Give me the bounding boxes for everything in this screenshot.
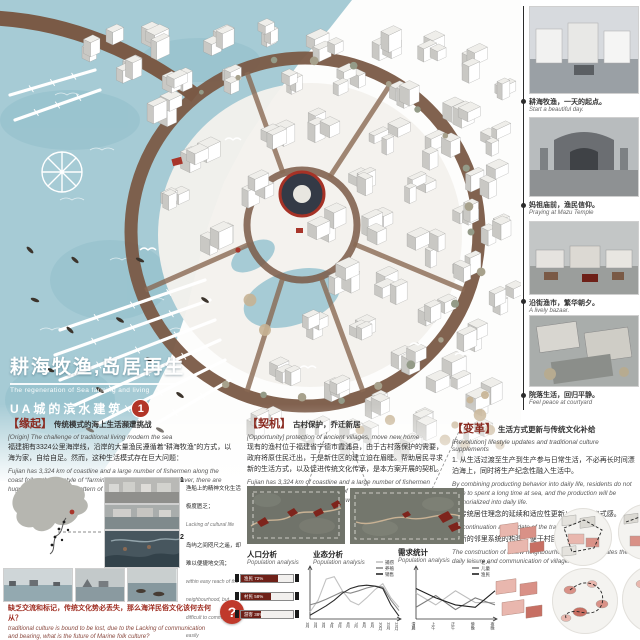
label-population-analysis: 人口分析 Population analysis (247, 549, 299, 566)
scene-card-morning: 耕海牧渔，一天的起点。 Start a beautiful day. (529, 6, 637, 113)
problem-cn: 岛屿之间咫尺之遥，却难以便捷地交流； (186, 543, 241, 567)
origin-tag-english: [Origin] The challenge of traditional li… (8, 434, 234, 441)
title-divider (10, 383, 178, 385)
scene-caption-cn: 沿街渔市，繁华朝夕。 (529, 298, 637, 308)
china-silhouette (12, 477, 87, 531)
revolution-point-en: By combining producting behavior into da… (452, 480, 636, 507)
satellite-map-industry (350, 488, 464, 544)
scene-caption-en: A lively bazaar. (529, 308, 637, 314)
svg-text:12月: 12月 (395, 622, 400, 631)
svg-text:11月: 11月 (386, 622, 391, 631)
svg-text:养殖: 养殖 (385, 565, 394, 572)
activity-flow-diagram-circle (552, 568, 618, 634)
svg-text:捕捞: 捕捞 (385, 559, 394, 566)
satellite-map-population (247, 486, 345, 544)
analysis-label-cn: 需求统计 (398, 547, 450, 558)
problem-en: Lacking of cultural life (186, 522, 234, 528)
revolution-tag-english: [Revolution] lifestyle updates and tradi… (452, 439, 636, 453)
question-block: 缺乏交流和标记，传统文化势必丢失，那么海洋民俗文化该何去何从？ traditio… (8, 604, 212, 640)
demand-line-chart: 清晨上午正午傍晚夜晚老人儿童渔民 (408, 558, 498, 634)
scene-caption-cn: 妈祖庙前，渔民信仰。 (529, 200, 637, 210)
mazu-temple-photo (529, 117, 639, 197)
timeline-dot (521, 393, 526, 398)
neighborhood-diagram-circle (554, 508, 612, 566)
svg-text:4月: 4月 (330, 622, 335, 629)
svg-text:5月: 5月 (338, 622, 343, 629)
svg-text:销售: 销售 (385, 571, 394, 578)
bar-row: 村民 58% (235, 592, 299, 600)
svg-text:9月: 9月 (370, 622, 375, 629)
question-cn: 缺乏交流和标记，传统文化势必丢失，那么海洋民俗文化该何去何从？ (8, 604, 212, 624)
svg-text:正午: 正午 (451, 622, 456, 631)
pink-block-cluster (492, 570, 550, 636)
svg-text:渔民: 渔民 (481, 571, 490, 578)
problem-item: 1 渔船上的精神文化生活极度匮乏；Lacking of cultural lif… (180, 477, 242, 531)
origin-tag: 【缘起】 (8, 418, 52, 430)
svg-text:老人: 老人 (481, 559, 490, 565)
revolution-tag: 【变革】 (452, 423, 496, 435)
population-bar-chart: 渔民 72%村民 58%游客 38% (235, 574, 299, 618)
problem-number: 1 (180, 477, 184, 531)
scene-card-temple: 妈祖庙前，渔民信仰。 Praying at Mazu Temple (529, 117, 637, 216)
revolution-note: 生活方式更新与传统文化补给 (498, 425, 596, 434)
scene-caption-en: Feel peace at courtyard (529, 400, 637, 406)
svg-text:清晨: 清晨 (412, 621, 417, 631)
central-plaza-emblem (280, 172, 324, 216)
morning-street-photo (529, 6, 639, 94)
bar-row: 渔民 72% (235, 574, 299, 582)
origin-paragraph-cn: 福建拥有3324公里海岸线，沿岸的大量渔民遵循着“耕海牧渔”的方式，以海为家，自… (8, 443, 234, 465)
scene-caption-cn: 耕海牧渔，一天的起点。 (529, 97, 637, 107)
china-location-map (6, 472, 102, 556)
aerial-photo-coast (104, 530, 180, 568)
origin-note: 传统模式的海上生活濒遭挑战 (54, 420, 152, 429)
timeline-dot (521, 299, 526, 304)
scene-card-courtyard: 院落生活，回归平静。 Feel peace at courtyard (529, 315, 637, 406)
sidebar-timeline (523, 6, 524, 410)
title-block: 耕海牧渔,岛居再生 The regeneration of Sea farmin… (10, 352, 210, 418)
svg-text:6月: 6月 (346, 622, 351, 629)
scene-card-bazaar: 沿街渔市，繁华朝夕。 A lively bazaar. (529, 221, 637, 314)
revolution-point-cn: 1. 从生活过渡至生产到生产参与日常生活，不必再长时间漂泊海上，同时将生产纪念性… (452, 456, 636, 478)
timeline-dot (521, 99, 526, 104)
bar-row: 游客 38% (235, 610, 299, 618)
scene-caption-cn: 院落生活，回归平静。 (529, 390, 637, 400)
sea-panorama-photo (3, 568, 73, 602)
fish-market-photo (529, 221, 639, 295)
activity-flow-diagram-circle (622, 564, 640, 634)
scene-sidebar: 耕海牧渔，一天的起点。 Start a beautiful day. 妈祖庙前，… (523, 0, 640, 481)
scene-caption-en: Start a beautiful day. (529, 107, 637, 113)
village-panorama-photo (75, 568, 126, 602)
opportunity-note: 古村保护，乔迁新居 (293, 420, 361, 429)
svg-text:儿童: 儿童 (481, 565, 490, 572)
fujian-marker (70, 510, 75, 515)
concept-diagrams (492, 508, 640, 640)
opportunity-tag-english: [Opportunity] protection of ancient vill… (247, 434, 447, 441)
question-en: traditional culture is bound to be lost,… (8, 625, 212, 640)
svg-text:7月: 7月 (354, 622, 359, 629)
svg-text:8月: 8月 (362, 622, 367, 629)
svg-text:1月: 1月 (306, 622, 311, 629)
svg-text:3月: 3月 (322, 622, 327, 629)
industry-line-chart: 1月2月3月4月5月6月7月8月9月10月11月12月捕捞养殖销售 (302, 558, 402, 634)
main-title-english: The regeneration of Sea farming and livi… (10, 387, 210, 394)
courtyard-photo (529, 315, 639, 387)
scene-caption-en: Praying at Mazu Temple (529, 210, 637, 216)
aerial-photo-city (104, 477, 180, 504)
main-title: 耕海牧渔,岛居再生 (10, 352, 210, 379)
line-chart-svg: 清晨上午正午傍晚夜晚老人儿童渔民 (408, 558, 498, 634)
svg-text:上午: 上午 (431, 621, 436, 631)
svg-text:傍晚: 傍晚 (471, 621, 476, 631)
panorama-strip (3, 568, 178, 602)
neighborhood-diagram-circle (618, 504, 640, 560)
problem-cn: 渔船上的精神文化生活极度匮乏； (186, 486, 241, 510)
line-chart-svg: 1月2月3月4月5月6月7月8月9月10月11月12月捕捞养殖销售 (302, 558, 402, 634)
opportunity-tag: 【契机】 (247, 418, 291, 430)
aerial-photo-harbor (104, 504, 180, 530)
svg-text:10月: 10月 (378, 622, 383, 631)
analysis-label-cn: 人口分析 (247, 549, 299, 560)
water-wheel-structure (42, 152, 82, 192)
boats-panorama-photo (127, 568, 178, 602)
pink-block-cluster (494, 512, 550, 566)
presentation-board: 耕海牧渔,岛居再生 The regeneration of Sea farmin… (0, 0, 640, 640)
timeline-dot (521, 203, 526, 208)
opportunity-paragraph-cn: 现有的渔村位于福建省宁德市霞浦县，由于古村落保护的需要，政府将原住民迁出，于是新… (247, 443, 447, 476)
svg-text:2月: 2月 (314, 622, 319, 629)
analysis-label-en: Population analysis (247, 560, 299, 566)
